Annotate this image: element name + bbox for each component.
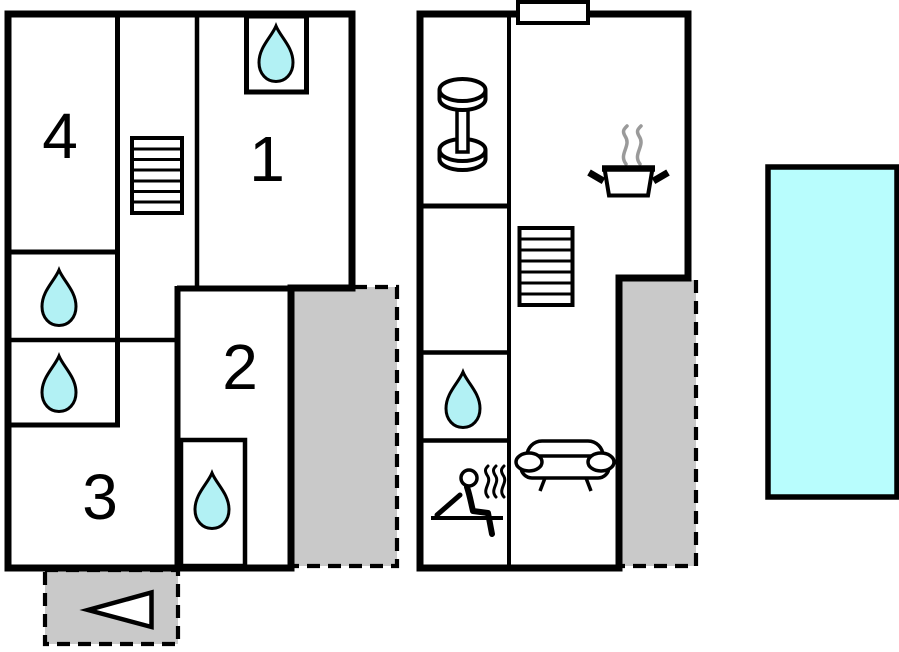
stairs-icon-right	[520, 228, 573, 305]
room-2-label: 2	[222, 331, 258, 403]
cooking-pot-icon	[589, 126, 668, 196]
swimming-pool	[768, 167, 897, 497]
water-drop-icon	[42, 356, 76, 412]
water-drop-icon	[195, 473, 229, 529]
vent-window	[518, 2, 588, 23]
room-4-label: 4	[42, 100, 78, 172]
room-3-label: 3	[82, 461, 118, 533]
floorplan-drawing: 4 1 2 3	[0, 0, 899, 652]
room-1-label: 1	[249, 123, 285, 195]
water-drop-icon	[259, 26, 293, 82]
floorplan-canvas: 4 1 2 3	[0, 0, 899, 652]
dumbbell-icon	[440, 79, 486, 170]
water-drop-icon	[42, 270, 76, 326]
terrace-left	[294, 287, 397, 566]
steam-icon	[623, 126, 627, 164]
sofa-icon	[516, 441, 614, 491]
terrace-right	[622, 280, 696, 566]
terrace-entrance	[45, 570, 178, 644]
water-drop-icon	[446, 372, 480, 428]
sauna-icon	[431, 466, 505, 534]
stairs-icon-left	[132, 138, 182, 213]
steam-icon	[637, 126, 641, 164]
